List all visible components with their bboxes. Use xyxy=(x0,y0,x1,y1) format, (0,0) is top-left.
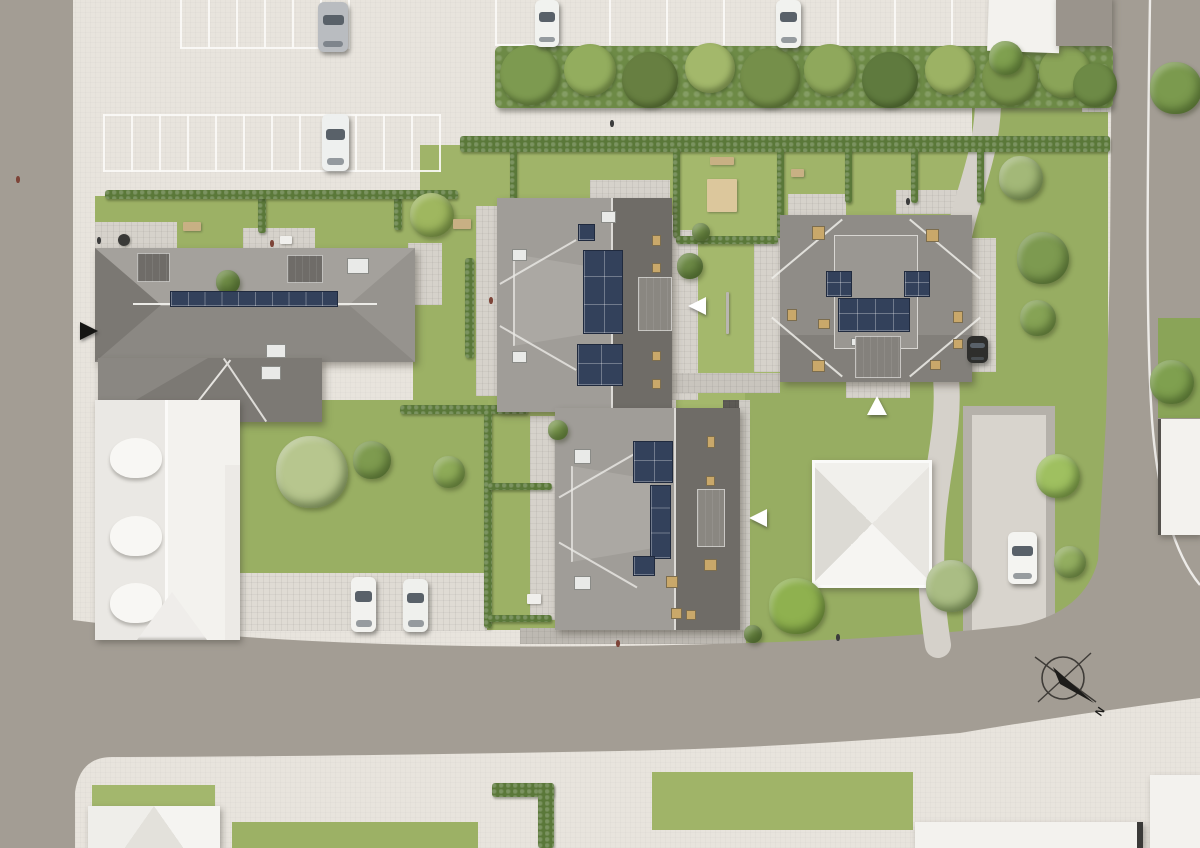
neighbor-roof-south xyxy=(915,822,1143,848)
terrace-a-northwest xyxy=(95,222,177,250)
terrace-a-north xyxy=(243,228,315,250)
parking-row-second-line xyxy=(439,114,441,172)
tree xyxy=(1054,546,1086,578)
car-silver-parking xyxy=(318,2,348,52)
garden-divider xyxy=(911,148,918,203)
solar-array-building-b xyxy=(578,224,595,241)
tree xyxy=(989,41,1023,75)
skylight-white xyxy=(512,249,527,261)
skylight-amber xyxy=(704,559,717,571)
clothesline-pole xyxy=(726,292,729,334)
sandbox xyxy=(707,179,737,212)
solar-array-building-b xyxy=(577,344,623,386)
parking-row-top-left-line xyxy=(236,0,238,48)
parking-row-top-right-line xyxy=(894,0,896,45)
person-figure xyxy=(906,198,910,205)
parking-row-top-left-line xyxy=(264,0,266,48)
car-white-parking xyxy=(535,0,559,47)
grass-patch-bottom-center xyxy=(232,822,478,848)
tree xyxy=(1020,300,1056,336)
skylight-white xyxy=(601,211,616,223)
person-figure xyxy=(616,640,620,647)
parking-row-top-right-line xyxy=(951,0,953,45)
solar-array-building-b2 xyxy=(633,556,655,576)
neighbor-roof-east xyxy=(1158,419,1200,535)
skylight-amber xyxy=(652,263,661,273)
skylight-amber xyxy=(652,379,661,389)
garden-divider xyxy=(673,148,680,238)
tree xyxy=(1150,360,1194,404)
parking-row-second-line xyxy=(103,114,105,172)
skylight-amber xyxy=(652,351,661,361)
entrance-marker-building-b2 xyxy=(749,509,767,527)
tree xyxy=(1036,454,1080,498)
parking-row-second-line xyxy=(383,114,385,172)
skylight-amber xyxy=(666,576,678,588)
skylight-amber xyxy=(686,610,696,620)
car-windshield xyxy=(780,12,798,22)
tree xyxy=(677,253,703,279)
neighbor-roof-se xyxy=(1150,775,1200,848)
skylight-amber xyxy=(707,436,715,448)
neighbor-roof-gray-ne xyxy=(1056,0,1112,46)
car-windshield xyxy=(355,591,373,602)
shrub-blob xyxy=(622,52,678,108)
skylight-white xyxy=(574,449,591,464)
tree xyxy=(548,420,568,440)
shrub-blob xyxy=(500,45,560,105)
solar-array-building-b2 xyxy=(650,485,671,559)
solar-array-building-c xyxy=(838,298,910,332)
entrance-marker-west xyxy=(80,322,98,340)
car-black-east xyxy=(967,336,988,363)
entrance-marker-building-b xyxy=(688,297,706,315)
dormer-building-b2 xyxy=(697,489,725,547)
car-rear-window xyxy=(327,158,344,165)
shrub-blob xyxy=(862,52,918,108)
skylight-amber xyxy=(953,311,963,323)
car-white-parking xyxy=(776,0,801,48)
roof-edge-shadow xyxy=(1137,822,1143,848)
east-notch xyxy=(225,465,240,640)
dormer xyxy=(110,438,162,478)
shrub-blob xyxy=(1073,63,1117,107)
tree xyxy=(692,223,710,241)
tree xyxy=(410,193,454,237)
parking-row-top-right-line xyxy=(495,0,497,45)
compass-needle xyxy=(1053,667,1094,703)
garden-divider xyxy=(510,148,517,204)
shrub-blob xyxy=(564,44,616,96)
car-white-parking xyxy=(322,114,349,171)
skylight-white xyxy=(512,351,527,363)
compass-north-label: N xyxy=(1092,704,1106,717)
car-rear-window xyxy=(323,41,342,47)
tree xyxy=(744,625,762,643)
tree xyxy=(433,456,465,488)
garden-divider xyxy=(845,148,852,203)
compass-rose: N xyxy=(1020,640,1120,730)
entrance-marker-building-c xyxy=(867,396,887,415)
parking-row-second-line xyxy=(243,114,245,172)
parking-row-second-line xyxy=(271,114,273,172)
dormer-building-c-south xyxy=(855,336,901,378)
car-windshield xyxy=(1012,546,1032,556)
existing-white-building xyxy=(95,400,240,640)
car-rear-window xyxy=(356,620,372,627)
skylight-amber xyxy=(926,229,939,242)
garden-divider xyxy=(258,197,266,233)
roof-edge-shadow xyxy=(1158,419,1161,535)
person-figure xyxy=(489,297,493,304)
hedgerow-north xyxy=(460,136,1110,152)
grass-patch-bottom-right xyxy=(652,772,913,830)
skylight-amber xyxy=(787,309,797,321)
car-rear-window xyxy=(971,357,984,360)
walled-driveway xyxy=(963,406,1055,644)
terrace-b2-west xyxy=(530,416,556,620)
shrub-blob xyxy=(925,45,975,95)
tree xyxy=(276,436,348,508)
walk-b2-south xyxy=(520,628,746,644)
tree xyxy=(353,441,391,479)
solar-array-building-c xyxy=(904,271,930,297)
skylight-amber xyxy=(818,319,830,329)
bench xyxy=(710,157,734,165)
skylight-amber xyxy=(812,226,825,240)
parking-row-second-line xyxy=(103,170,441,172)
skylight-amber xyxy=(953,339,963,349)
tree xyxy=(1150,62,1200,114)
parking-row-top-right-line xyxy=(609,0,611,45)
person-figure xyxy=(610,120,614,127)
skylight-amber xyxy=(930,360,941,370)
bench xyxy=(183,222,201,231)
solar-array-building-a xyxy=(170,291,338,307)
shrub-blob xyxy=(685,43,735,93)
car-windshield xyxy=(326,129,345,140)
car-rear-window xyxy=(781,37,797,43)
parking-row-second-line xyxy=(355,114,357,172)
tree xyxy=(926,560,978,612)
solar-array-building-b2 xyxy=(633,441,673,483)
parking-row-second-line xyxy=(159,114,161,172)
skylight-white xyxy=(574,576,591,590)
parking-row-second-line xyxy=(103,114,441,116)
car-windshield xyxy=(323,15,344,25)
skylight-amber xyxy=(671,608,682,619)
car-white-south xyxy=(403,579,428,632)
garden-divider xyxy=(394,197,402,230)
parking-row-second-line xyxy=(411,114,413,172)
car-windshield xyxy=(539,12,556,21)
person-figure xyxy=(97,237,101,244)
walk-c-west xyxy=(754,238,782,372)
dormer xyxy=(110,516,162,556)
car-white-driveway xyxy=(1008,532,1037,584)
dormer-building-a xyxy=(287,255,323,283)
garden-divider xyxy=(977,148,984,203)
solar-array-building-c xyxy=(826,271,852,297)
shrub-blob xyxy=(740,48,800,108)
parking-row-second-line xyxy=(215,114,217,172)
hedge-b2-garden xyxy=(488,483,552,490)
dormer-building-b xyxy=(638,277,672,331)
car-rear-window xyxy=(408,620,424,626)
garden-table xyxy=(527,594,541,604)
terrace-b-north xyxy=(590,180,670,200)
site-plan-canvas: N xyxy=(0,0,1200,848)
parking-row-top-left-line xyxy=(208,0,210,48)
parking-row-top-right-line xyxy=(837,0,839,45)
roof-ridge xyxy=(674,408,676,630)
parking-row-second-line xyxy=(187,114,189,172)
car-rear-window xyxy=(539,37,554,43)
skylight-amber xyxy=(652,235,661,246)
terrace-c-northwest xyxy=(788,194,846,216)
skylight-amber xyxy=(706,476,715,486)
grill xyxy=(118,234,130,246)
parking-row-second-line xyxy=(131,114,133,172)
person-figure xyxy=(836,634,840,641)
hedgerow-above-building-a xyxy=(105,190,458,199)
skylight-white xyxy=(261,366,281,380)
parking-row-top-left-line xyxy=(292,0,294,48)
car-white-south xyxy=(351,577,376,632)
parking-row-top-right-line xyxy=(666,0,668,45)
garden-table xyxy=(280,236,292,244)
garage-pavilion xyxy=(812,460,932,588)
skylight-white xyxy=(266,344,286,358)
parking-row-top-right-line xyxy=(723,0,725,45)
parking-row-top-left-line xyxy=(180,0,182,48)
skylight-white xyxy=(347,258,369,274)
person-figure xyxy=(16,176,20,183)
bench xyxy=(453,219,471,229)
hedge-b2-garden-west xyxy=(484,410,492,628)
car-windshield xyxy=(970,343,985,348)
hedge-west-of-b xyxy=(465,258,474,358)
courtyard-hedge xyxy=(676,236,778,244)
hedge-l-bottom-vertical xyxy=(538,783,554,848)
skylight-amber xyxy=(812,360,825,372)
shrub-blob xyxy=(804,44,856,96)
parking-row-top-left-line xyxy=(348,0,350,48)
bench xyxy=(791,169,804,177)
person-figure xyxy=(270,240,274,247)
tree xyxy=(999,156,1043,200)
hedge-b2-garden xyxy=(488,615,552,622)
car-windshield xyxy=(407,593,425,604)
tree xyxy=(769,578,825,634)
parking-row-second-line xyxy=(299,114,301,172)
car-rear-window xyxy=(1013,573,1032,579)
neighbor-roof-pyramid-sw xyxy=(88,806,220,848)
dormer-building-a xyxy=(137,253,170,282)
solar-array-building-b xyxy=(583,250,623,334)
tree xyxy=(1017,232,1069,284)
